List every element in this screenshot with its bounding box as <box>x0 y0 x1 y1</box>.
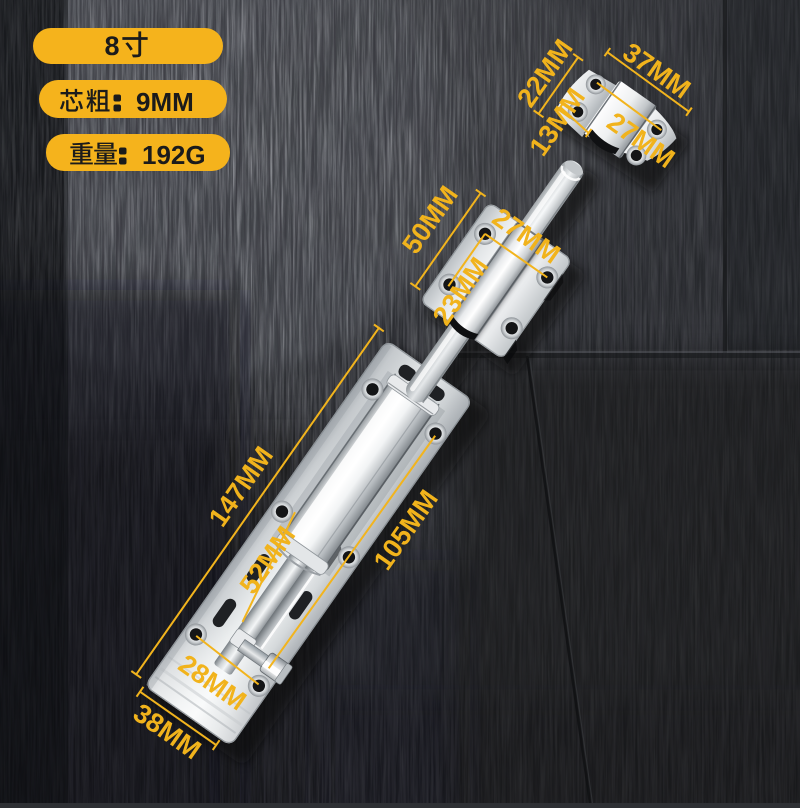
svg-text:8: 8 <box>104 31 119 61</box>
svg-text:9MM: 9MM <box>136 87 194 117</box>
svg-text:192G: 192G <box>142 140 206 170</box>
